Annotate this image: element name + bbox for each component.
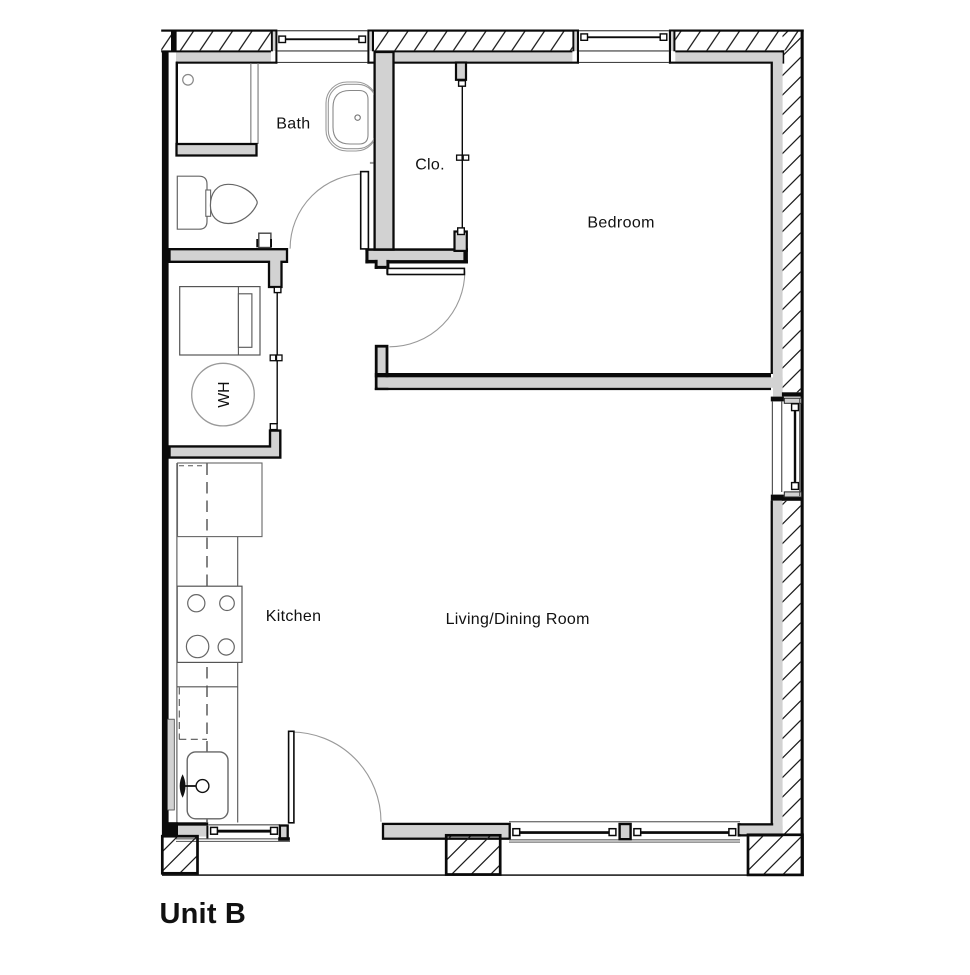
svg-text:Kitchen: Kitchen bbox=[266, 608, 321, 625]
svg-text:Bedroom: Bedroom bbox=[587, 215, 654, 232]
svg-text:Unit B: Unit B bbox=[160, 898, 247, 930]
svg-text:WH: WH bbox=[216, 381, 233, 407]
svg-text:Clo.: Clo. bbox=[415, 157, 445, 174]
svg-text:Bath: Bath bbox=[276, 115, 310, 132]
svg-text:Living/Dining Room: Living/Dining Room bbox=[446, 611, 590, 628]
